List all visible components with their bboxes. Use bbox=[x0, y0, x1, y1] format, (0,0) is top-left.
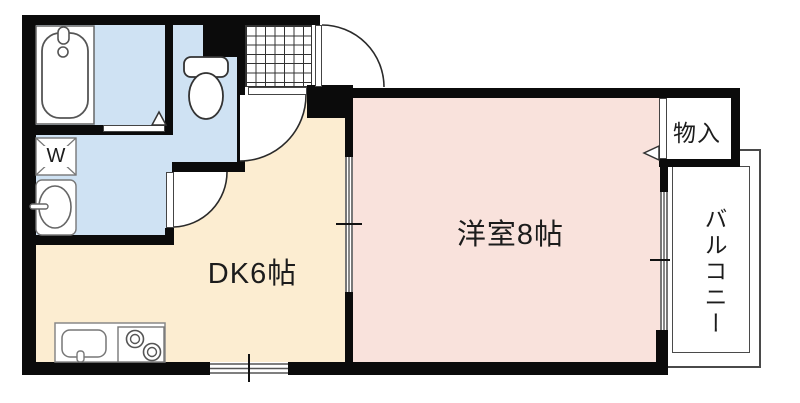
wall-toilet-bottom bbox=[172, 162, 245, 172]
entrance-step-door-leaf bbox=[248, 87, 307, 95]
entrance-door-leaf bbox=[315, 25, 322, 87]
washing-machine-label: W bbox=[42, 145, 70, 168]
wall-room-divider-lower bbox=[345, 292, 353, 363]
toilet-door-leaf bbox=[166, 172, 174, 228]
dk-room-label: DK6帖 bbox=[170, 250, 335, 292]
wall-western-top bbox=[345, 88, 740, 98]
wall-washroom-bottom bbox=[22, 235, 172, 245]
wall-bottom bbox=[22, 362, 668, 375]
wall-top bbox=[22, 15, 320, 25]
bathroom-door-leaf bbox=[103, 125, 165, 132]
wall-storage-bottom bbox=[659, 159, 740, 167]
wall-western-right-upper bbox=[660, 163, 668, 192]
bathroom-floor bbox=[36, 25, 165, 125]
wall-western-right-lower bbox=[656, 330, 668, 368]
storage-label: 物入 bbox=[662, 114, 732, 148]
wall-hall-stub bbox=[165, 228, 174, 245]
balcony-label: バルコニー bbox=[697, 172, 731, 372]
wall-room-divider-upper bbox=[345, 98, 353, 157]
wall-bath-toilet-divider bbox=[165, 25, 173, 135]
dk-hall-floor bbox=[172, 172, 345, 245]
entrance-door-arc bbox=[322, 25, 384, 87]
entrance-tile-area bbox=[245, 25, 312, 87]
wall-left bbox=[22, 15, 36, 372]
wall-storage-right bbox=[731, 88, 740, 166]
western-room-label: 洋室8帖 bbox=[428, 211, 593, 253]
wall-entrance-left bbox=[237, 25, 245, 172]
floor-plan: DK6帖 洋室8帖 物入 バルコニー W bbox=[0, 0, 800, 403]
